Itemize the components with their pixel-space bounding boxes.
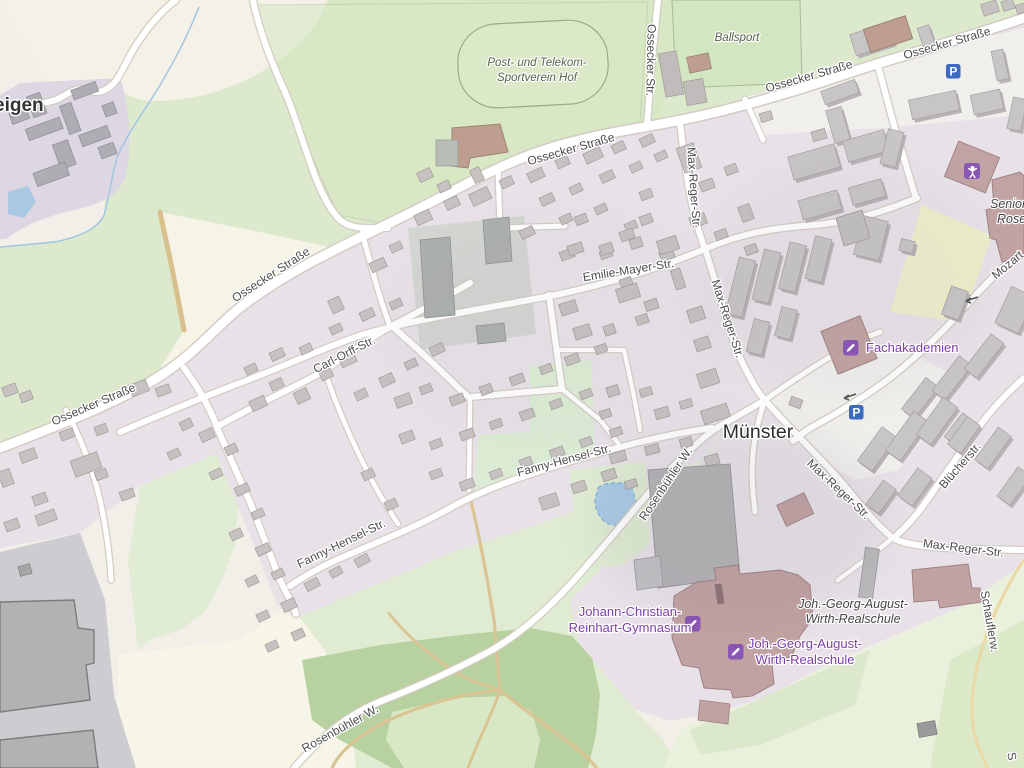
svg-text:Rosenh: Rosenh <box>997 212 1024 226</box>
svg-text:eigen: eigen <box>0 95 44 116</box>
svg-text:Seniorenr: Seniorenr <box>990 197 1024 211</box>
svg-text:Münster: Münster <box>723 421 794 443</box>
svg-text:Wirth-Realschule: Wirth-Realschule <box>805 612 900 626</box>
svg-text:Wirth-Realschule: Wirth-Realschule <box>756 652 855 667</box>
svg-text:Ballsport: Ballsport <box>715 32 761 44</box>
svg-text:Reinhart-Gymnasium: Reinhart-Gymnasium <box>569 620 692 635</box>
svg-text:Johann-Christian-: Johann-Christian- <box>579 604 682 619</box>
svg-text:Ossecker Str.: Ossecker Str. <box>643 24 658 96</box>
svg-text:Post- und Telekom-: Post- und Telekom- <box>487 57 586 69</box>
svg-text:Sportverein Hof: Sportverein Hof <box>497 72 579 84</box>
svg-text:P: P <box>949 65 957 79</box>
svg-text:Joh.-Georg-August-: Joh.-Georg-August- <box>748 636 862 651</box>
svg-text:P: P <box>852 406 860 420</box>
svg-text:Joh.-Georg-August-: Joh.-Georg-August- <box>797 597 908 611</box>
svg-text:Fachakademien: Fachakademien <box>866 340 959 355</box>
